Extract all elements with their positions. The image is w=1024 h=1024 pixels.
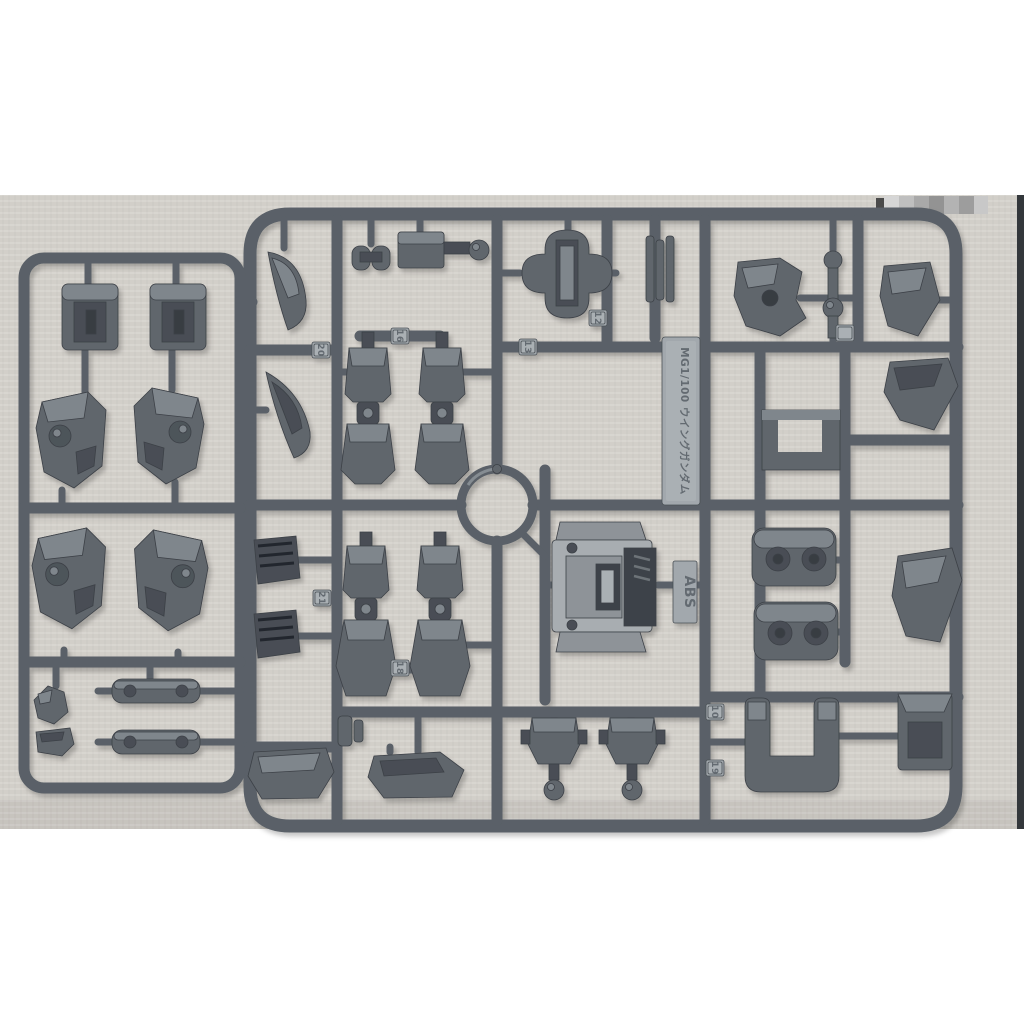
part-number-text: 12 [592, 311, 602, 325]
clip-part-a [62, 284, 118, 350]
part-number-text: 16 [394, 329, 404, 343]
photo-right-edge [1017, 195, 1024, 829]
grille-part-upper [254, 536, 300, 584]
grille-part-lower [254, 610, 300, 658]
circle-plate-part-b [754, 602, 838, 660]
link-part-a [112, 679, 200, 703]
flat-part-b [368, 752, 464, 798]
u-bracket-part [762, 410, 840, 470]
slat-part [646, 236, 674, 302]
part-number-tag-blank [836, 325, 854, 341]
photo-canvas: MG1/100 ウイングガンダム ABS 20 16 12 13 21 18 1… [0, 0, 1024, 1024]
part-number-text: 18 [394, 661, 404, 675]
small-post-part [338, 716, 363, 746]
part-number-text: 21 [316, 591, 326, 605]
cockpit-part [552, 522, 656, 652]
part-number-text: 13 [522, 340, 532, 354]
part-number-text: 19 [709, 761, 719, 775]
part-number-text: 20 [315, 343, 325, 357]
part-number-text: 10 [709, 705, 719, 719]
clip-part-b [150, 284, 206, 350]
photo-of-model-kit-sprue: MG1/100 ウイングガンダム ABS 20 16 12 13 21 18 1… [0, 0, 1024, 1024]
square-part [898, 694, 952, 770]
flat-part-a [248, 748, 334, 799]
kit-name-text: MG1/100 ウイングガンダム [678, 347, 691, 495]
circle-plate-part-a [752, 528, 836, 586]
abs-text: ABS [681, 575, 697, 608]
link-part-b [112, 730, 200, 754]
